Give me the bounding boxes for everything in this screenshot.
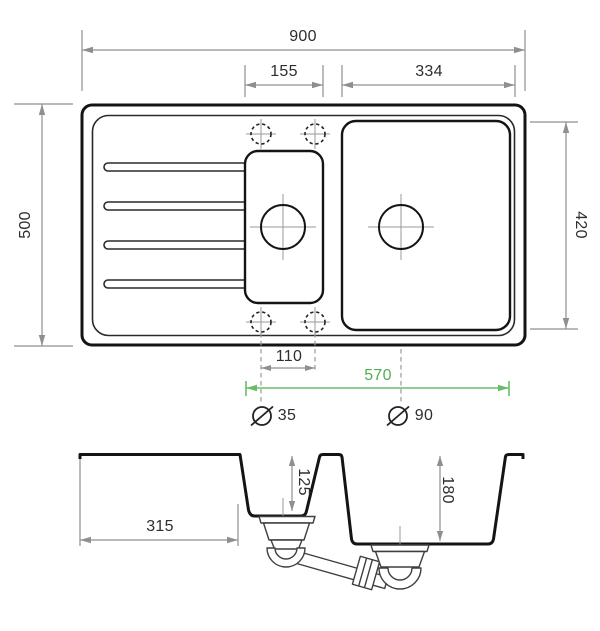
dim-label-large-bowl-depth-section: 180 — [439, 476, 455, 504]
diameter-icon — [251, 407, 273, 426]
drawing-geometry — [0, 0, 600, 631]
dim-label-small-bowl-width: 155 — [270, 64, 298, 80]
dim-label-tap-hole-diameter: 35 — [278, 408, 296, 424]
dim-label-large-bowl-depth: 420 — [572, 211, 588, 239]
dim-label-large-bowl-width: 334 — [415, 64, 443, 80]
dim-label-tap-hole-spacing: 110 — [276, 349, 302, 365]
waste-kit — [259, 517, 429, 590]
dim-large-bowl-depth — [530, 122, 578, 329]
diameter-icon — [387, 407, 409, 426]
dim-label-small-bowl-depth: 125 — [295, 468, 311, 496]
top-view — [82, 105, 525, 345]
dim-label-overall-width: 900 — [289, 29, 317, 45]
sink-technical-drawing: 900 155 334 500 420 110 570 35 90 315 12… — [0, 0, 600, 631]
groove — [104, 163, 250, 171]
groove — [104, 241, 250, 249]
groove — [104, 202, 250, 210]
groove — [104, 280, 250, 288]
dim-label-drain-diameter: 90 — [415, 408, 433, 424]
dim-label-bowl-span: 570 — [364, 368, 392, 384]
large-bowl — [342, 121, 510, 330]
dim-label-overall-depth: 500 — [18, 211, 34, 239]
dim-label-drainer-length: 315 — [146, 519, 174, 535]
